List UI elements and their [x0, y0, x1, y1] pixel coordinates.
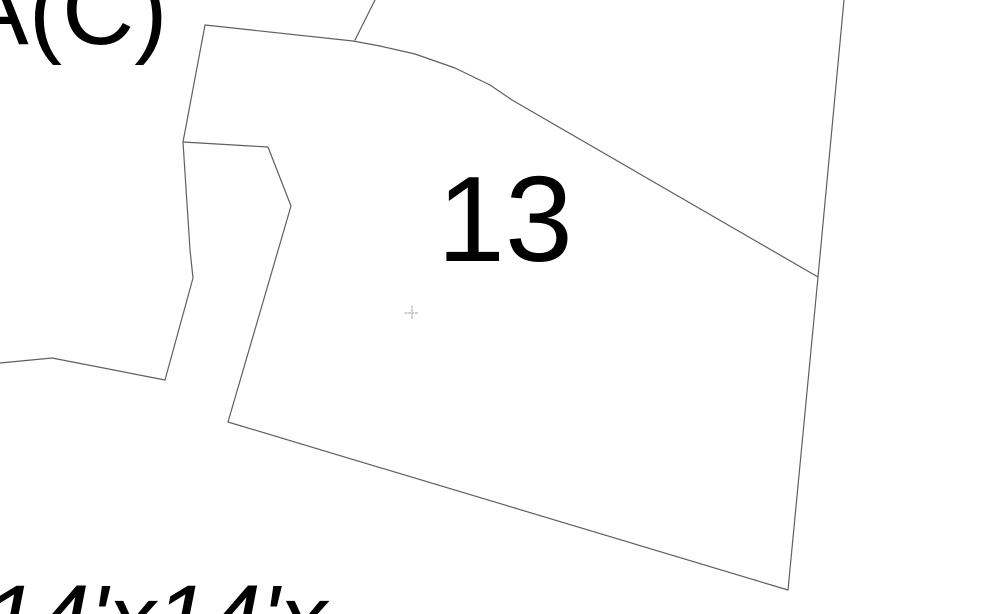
southwest-parcel-boundary-line [0, 358, 165, 380]
west-parcel-boundary-line [165, 142, 193, 380]
adjacent-parcel-label: A(C) [0, 0, 168, 60]
east-parcel-boundary-line [818, 0, 844, 277]
north-parcel-boundary-line [355, 0, 375, 40]
plat-map-canvas [0, 0, 1000, 614]
parcel-13-label: 13 [437, 158, 573, 280]
parcel-13-shape[interactable] [183, 25, 818, 590]
survey-cross-icon [405, 306, 419, 320]
dimension-label: 14'x14'x [0, 572, 327, 614]
map-viewport: A(C) 13 14'x14'x [0, 0, 1000, 614]
